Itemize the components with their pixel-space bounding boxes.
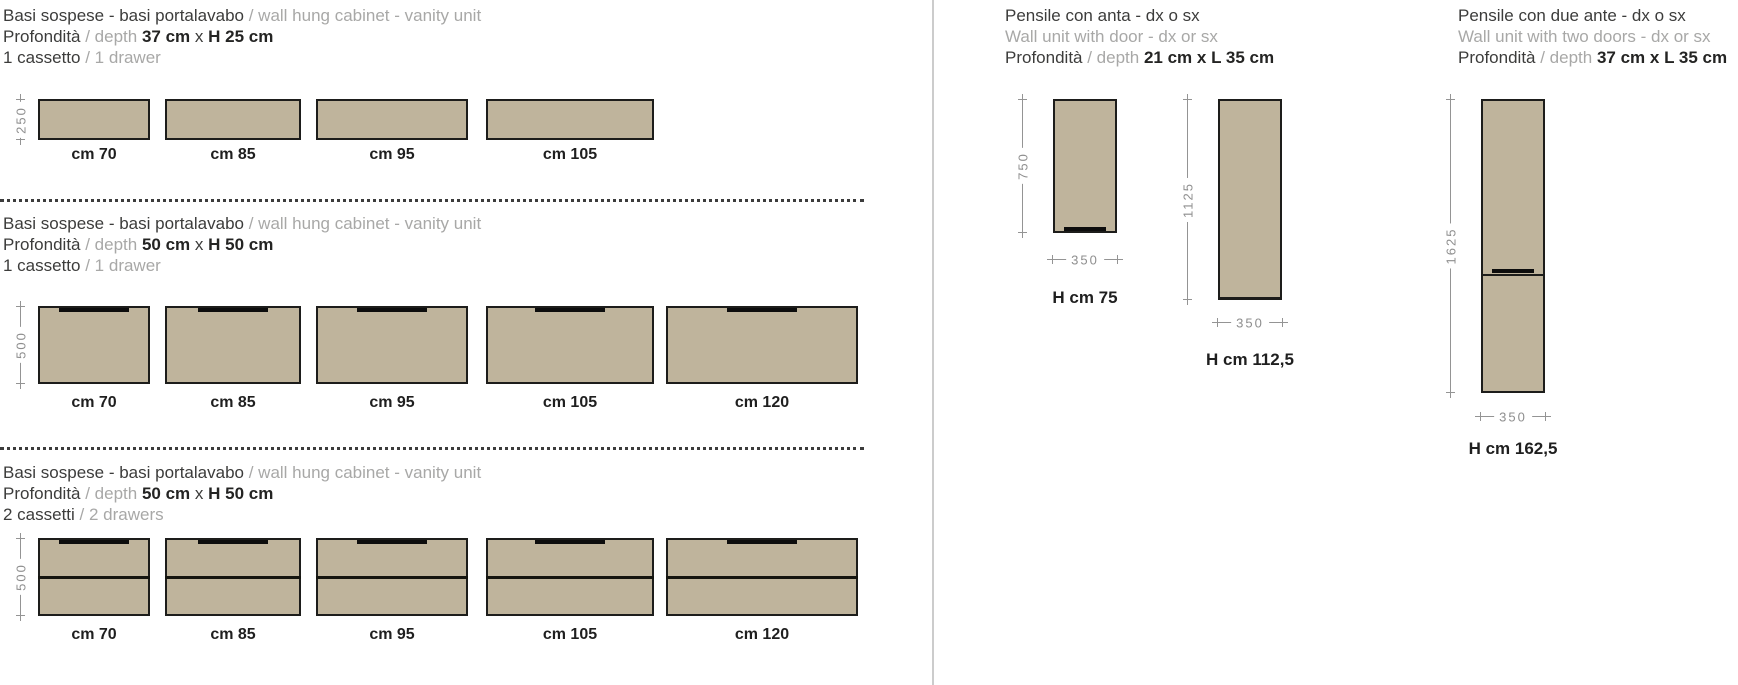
dimension-tick: [1446, 392, 1455, 393]
cabinet-rect: [486, 538, 654, 616]
width-dimension: 350: [1047, 259, 1123, 260]
section-3-header: Basi sospese - basi portalavabo / wall h…: [3, 462, 481, 525]
cabinet-width-label: cm 70: [34, 146, 154, 164]
cabinet-width-label: cm 120: [702, 626, 822, 644]
width-dimension: 350: [1475, 416, 1551, 417]
dotted-separator: [0, 199, 864, 202]
dimension-tick: [1018, 232, 1027, 233]
dimension-tick: [1183, 299, 1192, 300]
drawer-label-it: 1 cassetto: [3, 48, 81, 67]
cabinet-rect: [38, 306, 150, 384]
drawer-label-en: / 2 drawers: [80, 505, 164, 524]
door-handle: [1492, 269, 1534, 273]
drawer-divider: [316, 576, 468, 579]
depth-label-en: / depth: [85, 484, 137, 503]
cabinet-width-label: cm 95: [332, 146, 452, 164]
wall-unit-height-label: H cm 75: [1015, 288, 1155, 308]
cabinet-rect: [316, 306, 468, 384]
cabinet-width-label: cm 70: [34, 626, 154, 644]
drawer-divider: [486, 576, 654, 579]
drawer-handle: [198, 540, 268, 544]
title-english: Wall unit with door - dx or sx: [1005, 27, 1218, 46]
section-1-depth-line: Profondità / depth 37 cm x H 25 cm: [3, 26, 481, 47]
height-dimension-value: 500: [13, 559, 28, 595]
drawer-label-it: 1 cassetto: [3, 256, 81, 275]
depth-label-en: / depth: [85, 27, 137, 46]
width-dimension-value: 350: [1494, 409, 1532, 424]
width-dimension: 350: [1212, 322, 1288, 323]
dimension-separator: x: [195, 27, 204, 46]
dimension-tick: [16, 139, 25, 140]
dimension-tick: [16, 615, 25, 616]
wall-cabinet-rect: [1481, 99, 1545, 393]
drawer-handle: [357, 308, 427, 312]
cabinet-rect: [165, 99, 301, 140]
height-dimension: 500: [20, 301, 21, 389]
section-3-drawer-line: 2 cassetti / 2 drawers: [3, 504, 481, 525]
depth-label-en: / depth: [1087, 48, 1139, 67]
height-dimension: 250: [20, 94, 21, 145]
drawer-handle: [727, 540, 797, 544]
depth-label-it: Profondità: [3, 484, 81, 503]
dotted-separator: [0, 447, 864, 450]
height-dimension-value: 1125: [1180, 178, 1195, 222]
section-2-drawer-line: 1 cassetto / 1 drawer: [3, 255, 481, 276]
wall-unit-2-title: Pensile con due ante - dx o sx: [1458, 5, 1727, 26]
width-dimension-value: 350: [1231, 315, 1269, 330]
section-1-title: Basi sospese - basi portalavabo / wall h…: [3, 5, 481, 26]
drawer-divider: [38, 576, 150, 579]
dimension-tick: [1117, 255, 1118, 264]
door-divider: [1481, 274, 1545, 276]
height-dimension-value: 250: [13, 102, 28, 138]
wall-unit-2-header: Pensile con due ante - dx o sx Wall unit…: [1458, 5, 1727, 68]
depth-label-it: Profondità: [1458, 48, 1536, 67]
drawer-label-en: / 1 drawer: [85, 48, 161, 67]
drawer-handle: [727, 308, 797, 312]
drawer-handle: [59, 540, 129, 544]
height-dimension-value: 500: [13, 327, 28, 363]
height-value: H 50 cm: [208, 235, 273, 254]
depth-value: 37 cm: [142, 27, 190, 46]
depth-label-it: Profondità: [1005, 48, 1083, 67]
dimension-tick: [16, 306, 25, 307]
wall-unit-1-depth-line: Profondità / depth 21 cm x L 35 cm: [1005, 47, 1274, 68]
title-italian: Basi sospese - basi portalavabo: [3, 214, 244, 233]
cabinet-rect: [486, 306, 654, 384]
drawer-divider: [666, 576, 858, 579]
title-english: Wall unit with two doors - dx or sx: [1458, 27, 1711, 46]
dimension-tick: [1446, 99, 1455, 100]
depth-label-it: Profondità: [3, 27, 81, 46]
depth-label-en: / depth: [1540, 48, 1592, 67]
dimension-separator: x: [195, 235, 204, 254]
wall-unit-1-title: Pensile con anta - dx o sx: [1005, 5, 1274, 26]
section-1-drawer-line: 1 cassetto / 1 drawer: [3, 47, 481, 68]
drawer-handle: [535, 308, 605, 312]
title-english: / wall hung cabinet - vanity unit: [249, 463, 481, 482]
drawer-divider: [165, 576, 301, 579]
wall-cabinet-rect: [1053, 99, 1117, 233]
dimension-tick: [1018, 99, 1027, 100]
cabinet-rect: [38, 538, 150, 616]
wall-unit-2-subtitle: Wall unit with two doors - dx or sx: [1458, 26, 1727, 47]
title-italian: Basi sospese - basi portalavabo: [3, 6, 244, 25]
cabinet-rect: [316, 99, 468, 140]
dimension-tick: [1545, 412, 1546, 421]
height-dimension: 1625: [1450, 94, 1451, 398]
depth-value: 21 cm x L 35 cm: [1144, 48, 1274, 67]
title-italian: Basi sospese - basi portalavabo: [3, 463, 244, 482]
column-divider: [932, 0, 934, 685]
section-1-header: Basi sospese - basi portalavabo / wall h…: [3, 5, 481, 68]
depth-value: 37 cm x L 35 cm: [1597, 48, 1727, 67]
cabinet-rect: [486, 99, 654, 140]
height-dimension: 750: [1022, 94, 1023, 238]
dimension-tick: [1480, 412, 1481, 421]
dimension-tick: [1052, 255, 1053, 264]
width-dimension-value: 350: [1066, 252, 1104, 267]
dimension-tick: [16, 538, 25, 539]
title-english: / wall hung cabinet - vanity unit: [249, 214, 481, 233]
wall-unit-1-header: Pensile con anta - dx o sx Wall unit wit…: [1005, 5, 1274, 68]
cabinet-width-label: cm 105: [510, 394, 630, 412]
cabinet-rect: [165, 538, 301, 616]
cabinet-width-label: cm 95: [332, 626, 452, 644]
depth-value: 50 cm: [142, 235, 190, 254]
dimension-separator: x: [195, 484, 204, 503]
dimension-tick: [1217, 318, 1218, 327]
cabinet-width-label: cm 70: [34, 394, 154, 412]
cabinet-rect: [165, 306, 301, 384]
wall-unit-height-label: H cm 112,5: [1180, 350, 1320, 370]
dimension-tick: [16, 383, 25, 384]
cabinet-width-label: cm 85: [173, 146, 293, 164]
title-italian: Pensile con anta - dx o sx: [1005, 6, 1200, 25]
section-2-depth-line: Profondità / depth 50 cm x H 50 cm: [3, 234, 481, 255]
dimension-tick: [16, 99, 25, 100]
door-handle: [1064, 227, 1106, 231]
depth-label-en: / depth: [85, 235, 137, 254]
title-italian: Pensile con due ante - dx o sx: [1458, 6, 1686, 25]
cabinet-width-label: cm 85: [173, 626, 293, 644]
depth-value: 50 cm: [142, 484, 190, 503]
cabinet-rect: [316, 538, 468, 616]
cabinet-rect: [38, 99, 150, 140]
section-3-title: Basi sospese - basi portalavabo / wall h…: [3, 462, 481, 483]
wall-cabinet-rect: [1218, 99, 1282, 300]
drawer-handle: [357, 540, 427, 544]
cabinet-width-label: cm 95: [332, 394, 452, 412]
depth-label-it: Profondità: [3, 235, 81, 254]
dimension-tick: [1282, 318, 1283, 327]
height-dimension-value: 1625: [1443, 224, 1458, 269]
height-dimension: 1125: [1187, 94, 1188, 305]
wall-unit-height-label: H cm 162,5: [1443, 439, 1583, 459]
section-3-depth-line: Profondità / depth 50 cm x H 50 cm: [3, 483, 481, 504]
drawer-handle: [198, 308, 268, 312]
wall-unit-1-subtitle: Wall unit with door - dx or sx: [1005, 26, 1274, 47]
height-value: H 25 cm: [208, 27, 273, 46]
cabinet-rect: [666, 306, 858, 384]
cabinet-width-label: cm 120: [702, 394, 822, 412]
dimension-tick: [1183, 99, 1192, 100]
cabinet-rect: [666, 538, 858, 616]
height-value: H 50 cm: [208, 484, 273, 503]
drawer-handle: [59, 308, 129, 312]
section-2-title: Basi sospese - basi portalavabo / wall h…: [3, 213, 481, 234]
section-2-header: Basi sospese - basi portalavabo / wall h…: [3, 213, 481, 276]
drawer-handle: [535, 540, 605, 544]
drawer-label-en: / 1 drawer: [85, 256, 161, 275]
catalog-page: Basi sospese - basi portalavabo / wall h…: [0, 0, 1738, 685]
height-dimension-value: 750: [1015, 148, 1030, 184]
cabinet-width-label: cm 105: [510, 146, 630, 164]
cabinet-width-label: cm 105: [510, 626, 630, 644]
cabinet-width-label: cm 85: [173, 394, 293, 412]
drawer-label-it: 2 cassetti: [3, 505, 75, 524]
height-dimension: 500: [20, 533, 21, 621]
title-english: / wall hung cabinet - vanity unit: [249, 6, 481, 25]
wall-unit-2-depth-line: Profondità / depth 37 cm x L 35 cm: [1458, 47, 1727, 68]
